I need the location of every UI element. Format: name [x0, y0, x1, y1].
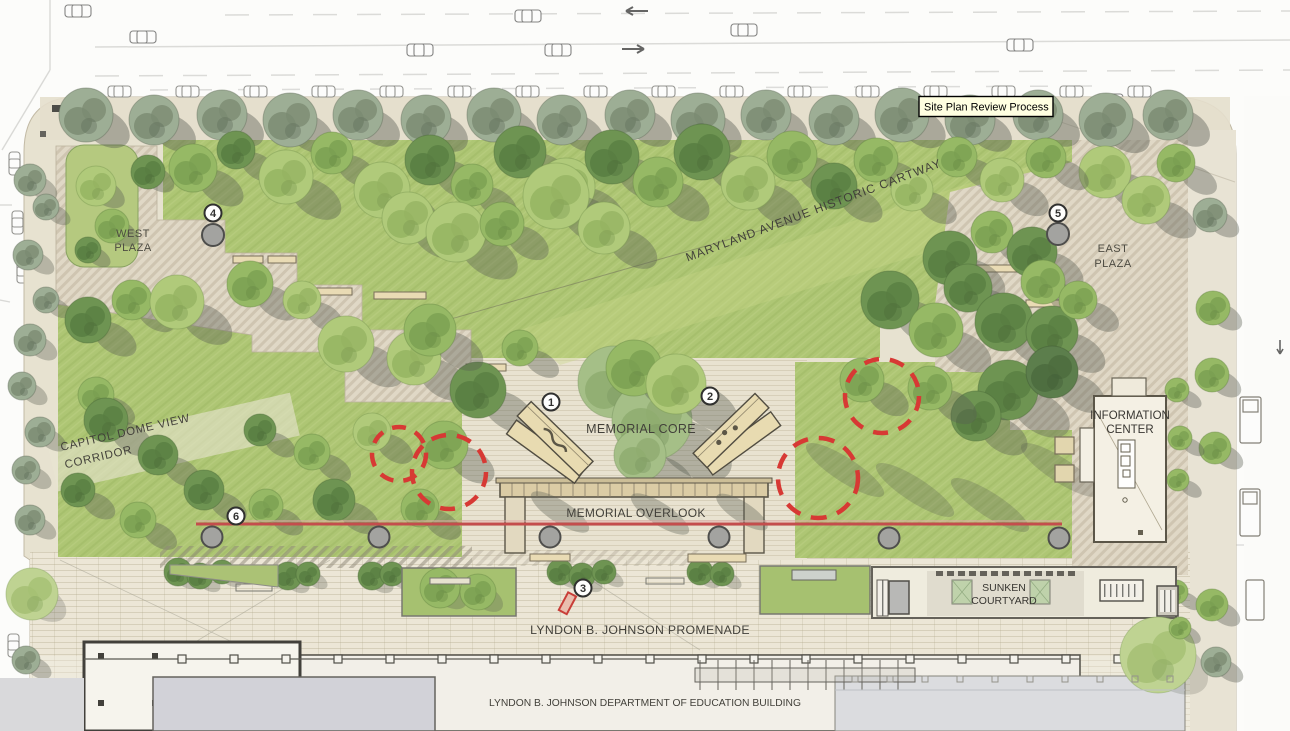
svg-text:Site Plan Review Process: Site Plan Review Process: [924, 102, 1049, 114]
